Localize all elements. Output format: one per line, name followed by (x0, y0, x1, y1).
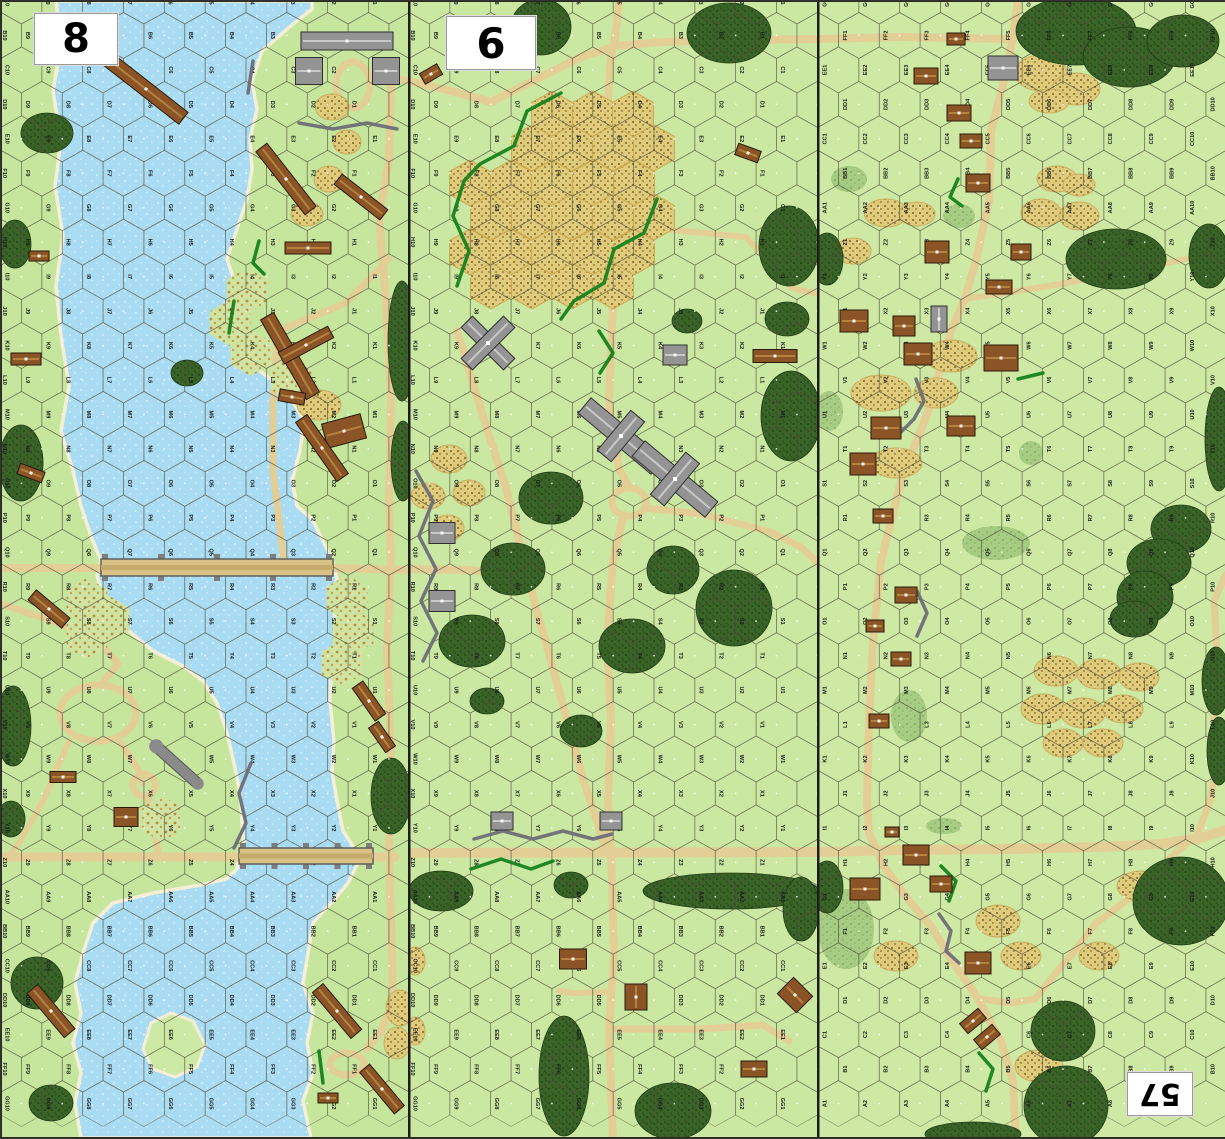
svg-text:P6: P6 (554, 514, 560, 521)
svg-text:T3: T3 (269, 652, 275, 659)
svg-text:Q4: Q4 (248, 549, 254, 557)
wooden-building (29, 251, 49, 261)
svg-text:S9: S9 (1149, 480, 1155, 487)
svg-text:F6: F6 (146, 170, 152, 177)
svg-text:H5: H5 (187, 239, 193, 246)
svg-text:M9: M9 (1149, 686, 1155, 694)
svg-text:FF1: FF1 (350, 1064, 356, 1074)
wooden-building (960, 134, 982, 148)
svg-text:L4: L4 (636, 377, 642, 384)
svg-text:T6: T6 (146, 652, 152, 659)
svg-text:U5: U5 (616, 687, 622, 694)
svg-text:V8: V8 (473, 721, 479, 728)
svg-text:N1: N1 (350, 445, 356, 452)
svg-text:H6: H6 (146, 239, 152, 246)
svg-text:CC5: CC5 (616, 960, 622, 971)
svg-text:EE1: EE1 (779, 1029, 785, 1040)
svg-text:Y5: Y5 (986, 273, 992, 280)
svg-text:AA1: AA1 (371, 891, 377, 902)
svg-text:M3: M3 (904, 686, 910, 694)
svg-text:J7: J7 (513, 308, 519, 314)
svg-text:X4: X4 (228, 790, 234, 798)
svg-text:Y7: Y7 (1067, 273, 1073, 280)
svg-text:H1: H1 (758, 239, 764, 246)
svg-text:EE9: EE9 (1149, 65, 1155, 76)
svg-text:AA4: AA4 (945, 201, 951, 213)
svg-text:BB2: BB2 (310, 926, 316, 937)
svg-text:Q4: Q4 (656, 549, 662, 557)
svg-text:EE4: EE4 (248, 1029, 254, 1040)
svg-text:K1: K1 (779, 342, 785, 349)
svg-text:Y10: Y10 (1190, 272, 1196, 282)
svg-text:W8: W8 (85, 755, 91, 763)
svg-text:U8: U8 (85, 687, 91, 694)
svg-text:X1: X1 (758, 790, 764, 797)
svg-text:EE2: EE2 (863, 65, 869, 76)
svg-text:S4: S4 (945, 479, 951, 487)
svg-text:BB5: BB5 (1006, 168, 1012, 179)
wooden-building (895, 587, 917, 603)
svg-text:X6: X6 (554, 790, 560, 797)
svg-text:Y8: Y8 (1108, 273, 1114, 280)
svg-text:FF3: FF3 (269, 1064, 275, 1074)
svg-text:Q10: Q10 (411, 547, 417, 558)
svg-text:F7: F7 (105, 170, 111, 177)
svg-text:X5: X5 (595, 790, 601, 797)
svg-text:X5: X5 (187, 790, 193, 797)
svg-text:H10: H10 (1210, 857, 1216, 867)
svg-text:FF2: FF2 (884, 30, 890, 40)
svg-text:I8: I8 (85, 274, 91, 279)
svg-text:W2: W2 (330, 755, 336, 763)
svg-text:H6: H6 (554, 239, 560, 246)
svg-text:G5: G5 (616, 204, 622, 211)
svg-text:EE9: EE9 (44, 1029, 50, 1040)
svg-text:Q1: Q1 (371, 549, 377, 556)
svg-text:BB10: BB10 (1210, 166, 1216, 180)
wooden-building (984, 345, 1018, 371)
svg-text:F1: F1 (350, 170, 356, 177)
svg-text:L7: L7 (105, 377, 111, 384)
svg-text:Z6: Z6 (554, 859, 560, 866)
svg-text:D6: D6 (554, 101, 560, 108)
svg-text:AA5: AA5 (208, 891, 214, 902)
svg-text:I2: I2 (330, 274, 336, 279)
svg-text:K6: K6 (575, 342, 581, 349)
svg-text:E4: E4 (656, 135, 662, 143)
svg-text:J4: J4 (965, 789, 971, 796)
svg-text:AA2: AA2 (738, 891, 744, 902)
svg-text:FF3: FF3 (924, 30, 930, 40)
svg-text:R3: R3 (677, 583, 683, 590)
svg-text:Z9: Z9 (24, 859, 30, 866)
svg-text:X8: X8 (473, 790, 479, 797)
svg-text:V10: V10 (1210, 375, 1216, 385)
svg-text:B7: B7 (1088, 1066, 1094, 1073)
svg-text:J5: J5 (1006, 790, 1012, 796)
svg-text:Q10: Q10 (1190, 547, 1196, 558)
svg-text:Y10: Y10 (3, 823, 9, 833)
svg-text:K2: K2 (330, 342, 336, 349)
svg-text:S2: S2 (738, 618, 744, 625)
svg-text:L10: L10 (1210, 720, 1216, 730)
svg-text:CC5: CC5 (208, 960, 214, 971)
svg-text:G10: G10 (1190, 892, 1196, 903)
svg-text:I9: I9 (44, 274, 50, 279)
svg-text:L2: L2 (718, 377, 724, 384)
hex-map-canvas[interactable]: A10A9A8A7A6A5A4A3A2A1B10B9B8B7B6B5B4B3B2… (1, 1, 1225, 1138)
svg-text:G3: G3 (904, 893, 910, 900)
svg-text:BB3: BB3 (677, 926, 683, 937)
svg-text:R3: R3 (269, 583, 275, 590)
svg-text:W1: W1 (779, 755, 785, 763)
wooden-building (891, 652, 911, 666)
svg-text:Q3: Q3 (289, 549, 295, 556)
svg-text:CC1: CC1 (371, 960, 377, 971)
svg-text:K8: K8 (1108, 755, 1114, 762)
svg-text:W4: W4 (945, 340, 951, 349)
svg-text:E3: E3 (289, 135, 295, 142)
svg-text:U3: U3 (904, 411, 910, 418)
svg-text:C3: C3 (697, 66, 703, 73)
svg-text:F5: F5 (595, 170, 601, 177)
svg-text:X3: X3 (269, 790, 275, 797)
svg-text:H1: H1 (843, 859, 849, 866)
svg-text:H9: H9 (1169, 859, 1175, 866)
svg-text:Z4: Z4 (636, 859, 642, 866)
svg-text:D8: D8 (65, 101, 71, 108)
svg-text:GG5: GG5 (616, 1098, 622, 1110)
svg-text:L6: L6 (554, 377, 560, 384)
svg-text:K9: K9 (44, 342, 50, 349)
svg-text:J8: J8 (65, 308, 71, 314)
svg-text:E10: E10 (411, 134, 417, 144)
svg-text:W6: W6 (575, 755, 581, 763)
svg-text:K7: K7 (1067, 755, 1073, 762)
svg-text:W10: W10 (3, 753, 9, 765)
svg-text:O8: O8 (85, 480, 91, 487)
svg-text:U9: U9 (44, 687, 50, 694)
wooden-building (866, 620, 884, 632)
stone-building (663, 345, 687, 365)
svg-text:K6: K6 (167, 342, 173, 349)
svg-text:E10: E10 (3, 134, 9, 144)
svg-text:M9: M9 (44, 411, 50, 419)
svg-text:G6: G6 (167, 204, 173, 211)
svg-text:D7: D7 (513, 101, 519, 108)
svg-text:G6: G6 (1027, 893, 1033, 900)
svg-text:W3: W3 (289, 755, 295, 763)
svg-text:T9: T9 (432, 652, 438, 659)
svg-text:N3: N3 (677, 445, 683, 452)
svg-text:CC4: CC4 (656, 960, 662, 972)
svg-text:R9: R9 (24, 583, 30, 590)
wooden-building (947, 33, 965, 45)
svg-text:DD8: DD8 (473, 995, 479, 1006)
svg-text:Q6: Q6 (1027, 549, 1033, 556)
svg-text:S2: S2 (863, 480, 869, 487)
svg-text:O9: O9 (452, 480, 458, 487)
svg-text:H7: H7 (1088, 859, 1094, 866)
svg-text:L1: L1 (350, 377, 356, 384)
svg-text:C5: C5 (616, 66, 622, 73)
svg-text:BB3: BB3 (269, 926, 275, 937)
svg-text:EE7: EE7 (1067, 65, 1073, 76)
svg-text:H4: H4 (636, 239, 642, 247)
svg-text:Z1: Z1 (843, 239, 849, 246)
svg-text:J7: J7 (105, 308, 111, 314)
svg-text:G1: G1 (779, 204, 785, 211)
svg-text:L3: L3 (677, 377, 683, 384)
svg-text:L8: L8 (65, 377, 71, 384)
svg-text:G5: G5 (986, 893, 992, 900)
board-number-6: 6 (446, 16, 536, 70)
svg-text:J6: J6 (1047, 790, 1053, 796)
svg-text:R4: R4 (636, 583, 642, 591)
svg-text:D1: D1 (843, 997, 849, 1004)
svg-text:E7: E7 (126, 135, 132, 142)
svg-text:Y6: Y6 (167, 824, 173, 831)
svg-text:K10: K10 (411, 340, 417, 350)
svg-text:R1: R1 (843, 514, 849, 521)
svg-text:P7: P7 (513, 514, 519, 521)
svg-text:FF4: FF4 (636, 1064, 642, 1075)
svg-text:BB7: BB7 (1088, 168, 1094, 179)
svg-text:DD1: DD1 (843, 99, 849, 110)
svg-text:F8: F8 (65, 170, 71, 177)
svg-text:J3: J3 (924, 790, 930, 796)
svg-text:H1: H1 (350, 239, 356, 246)
svg-text:R5: R5 (187, 583, 193, 590)
svg-text:W10: W10 (411, 753, 417, 765)
svg-text:AA5: AA5 (616, 891, 622, 902)
svg-text:EE3: EE3 (697, 1029, 703, 1040)
svg-text:K7: K7 (534, 342, 540, 349)
svg-text:A7: A7 (1067, 1100, 1073, 1107)
svg-text:B6: B6 (146, 32, 152, 39)
svg-text:DD4: DD4 (228, 995, 234, 1007)
svg-text:P4: P4 (228, 514, 234, 522)
svg-text:O1: O1 (779, 480, 785, 487)
svg-text:F4: F4 (228, 170, 234, 177)
svg-text:GG10: GG10 (411, 1096, 417, 1111)
svg-text:G9: G9 (1149, 893, 1155, 900)
svg-text:Y4: Y4 (248, 824, 254, 832)
svg-text:G2: G2 (330, 204, 336, 211)
wooden-building (930, 876, 952, 892)
svg-text:Z9: Z9 (432, 859, 438, 866)
svg-text:E2: E2 (330, 135, 336, 142)
svg-text:Q2: Q2 (863, 549, 869, 556)
svg-text:DD9: DD9 (432, 995, 438, 1006)
svg-text:U9: U9 (1149, 411, 1155, 418)
wooden-building (1011, 244, 1031, 260)
svg-text:I2: I2 (738, 274, 744, 279)
svg-text:V6: V6 (146, 721, 152, 728)
wooden-building (893, 316, 915, 336)
svg-text:R6: R6 (554, 583, 560, 590)
svg-text:P3: P3 (269, 514, 275, 521)
svg-text:N5: N5 (187, 445, 193, 452)
svg-text:V4: V4 (965, 376, 971, 384)
svg-text:B2: B2 (718, 32, 724, 39)
board-57[interactable] (811, 1, 1225, 1138)
svg-text:E5: E5 (616, 135, 622, 142)
svg-text:D4: D4 (228, 101, 234, 109)
svg-text:A1: A1 (822, 1100, 828, 1107)
svg-text:T2: T2 (884, 446, 890, 453)
svg-text:CC3: CC3 (904, 133, 910, 144)
svg-text:H8: H8 (1129, 859, 1135, 866)
svg-text:G6: G6 (575, 204, 581, 211)
svg-text:K3: K3 (904, 755, 910, 762)
svg-text:N9: N9 (432, 445, 438, 452)
svg-text:BB5: BB5 (595, 926, 601, 937)
svg-text:AA10: AA10 (1190, 201, 1196, 215)
svg-text:I7: I7 (534, 274, 540, 279)
svg-text:Z6: Z6 (146, 859, 152, 866)
svg-text:W2: W2 (738, 755, 744, 763)
svg-text:B6: B6 (554, 32, 560, 39)
svg-text:C3: C3 (289, 66, 295, 73)
svg-text:FF4: FF4 (228, 1064, 234, 1075)
svg-text:T9: T9 (1169, 446, 1175, 453)
svg-text:H3: H3 (677, 239, 683, 246)
svg-text:B3: B3 (677, 32, 683, 39)
wooden-building (947, 416, 975, 436)
svg-text:J6: J6 (554, 308, 560, 314)
stone-building (429, 523, 455, 544)
svg-text:C2: C2 (330, 66, 336, 73)
svg-text:N7: N7 (105, 445, 111, 452)
svg-text:S4: S4 (656, 618, 662, 626)
wooden-building (850, 878, 880, 900)
svg-text:D5: D5 (595, 101, 601, 108)
svg-text:U7: U7 (1067, 411, 1073, 418)
svg-text:V5: V5 (187, 721, 193, 728)
svg-text:W3: W3 (697, 755, 703, 763)
svg-text:U6: U6 (575, 687, 581, 694)
svg-text:J1: J1 (350, 308, 356, 314)
svg-text:BB2: BB2 (718, 926, 724, 937)
svg-text:U10: U10 (411, 685, 417, 695)
stone-building (296, 58, 323, 85)
svg-text:T4: T4 (636, 652, 642, 659)
svg-text:L7: L7 (1088, 721, 1094, 728)
svg-text:G8: G8 (493, 204, 499, 211)
svg-text:E9: E9 (452, 135, 458, 142)
svg-text:U3: U3 (289, 687, 295, 694)
svg-text:CC2: CC2 (330, 960, 336, 971)
svg-text:BB6: BB6 (146, 926, 152, 937)
svg-text:U3: U3 (697, 687, 703, 694)
svg-text:AA2: AA2 (863, 202, 869, 213)
svg-text:O9: O9 (1149, 617, 1155, 624)
svg-text:S10: S10 (1190, 478, 1196, 488)
svg-text:N4: N4 (965, 651, 971, 659)
svg-text:D3: D3 (924, 997, 930, 1004)
vasl-map[interactable]: A10A9A8A7A6A5A4A3A2A1B10B9B8B7B6B5B4B3B2… (0, 0, 1225, 1139)
svg-text:J9: J9 (24, 308, 30, 314)
svg-text:D1: D1 (350, 101, 356, 108)
svg-text:V3: V3 (924, 377, 930, 384)
svg-text:I8: I8 (493, 274, 499, 279)
svg-text:U7: U7 (126, 687, 132, 694)
svg-text:DD9: DD9 (1169, 99, 1175, 110)
svg-text:O8: O8 (493, 480, 499, 487)
svg-text:Y2: Y2 (330, 824, 336, 831)
svg-text:R1: R1 (758, 583, 764, 590)
svg-text:Y1: Y1 (371, 824, 377, 831)
svg-text:F7: F7 (513, 170, 519, 177)
svg-text:P9: P9 (24, 514, 30, 521)
svg-text:M10: M10 (411, 409, 417, 420)
svg-text:X2: X2 (310, 790, 316, 797)
svg-text:F1: F1 (843, 928, 849, 935)
svg-text:DD5: DD5 (187, 995, 193, 1006)
svg-text:F10: F10 (1210, 926, 1216, 936)
svg-text:C9: C9 (44, 66, 50, 73)
svg-text:CC8: CC8 (1108, 133, 1114, 144)
svg-text:EE8: EE8 (85, 1029, 91, 1040)
svg-text:AA5: AA5 (986, 202, 992, 213)
svg-text:I6: I6 (1027, 826, 1033, 831)
svg-text:EE2: EE2 (738, 1029, 744, 1040)
svg-text:V4: V4 (228, 721, 234, 729)
svg-text:U9: U9 (452, 687, 458, 694)
svg-text:V2: V2 (310, 721, 316, 728)
svg-text:L7: L7 (513, 377, 519, 384)
svg-text:E3: E3 (904, 962, 910, 969)
svg-text:K8: K8 (85, 342, 91, 349)
svg-text:X2: X2 (884, 308, 890, 315)
svg-text:M2: M2 (330, 411, 336, 419)
svg-text:Y9: Y9 (452, 824, 458, 831)
svg-text:I2: I2 (863, 826, 869, 831)
svg-text:O2: O2 (738, 480, 744, 487)
svg-text:H8: H8 (65, 239, 71, 246)
svg-text:U4: U4 (248, 687, 254, 695)
svg-text:D7: D7 (105, 101, 111, 108)
svg-text:CC8: CC8 (85, 960, 91, 971)
svg-text:B9: B9 (24, 32, 30, 39)
svg-text:J2: J2 (310, 308, 316, 314)
wooden-building (925, 241, 949, 263)
svg-text:Q2: Q2 (738, 549, 744, 556)
svg-text:BB9: BB9 (24, 926, 30, 937)
svg-text:Q1: Q1 (779, 549, 785, 556)
svg-text:D9: D9 (24, 101, 30, 108)
svg-text:Q4: Q4 (945, 548, 951, 556)
svg-text:E1: E1 (779, 135, 785, 142)
svg-text:C1: C1 (822, 1031, 828, 1038)
wooden-building (873, 509, 893, 523)
svg-text:BB8: BB8 (1129, 168, 1135, 179)
svg-text:S3: S3 (289, 618, 295, 625)
svg-text:CC1: CC1 (779, 960, 785, 971)
svg-text:Q7: Q7 (534, 549, 540, 556)
svg-text:K4: K4 (945, 755, 951, 763)
svg-text:C8: C8 (1108, 1031, 1114, 1038)
svg-text:X8: X8 (1129, 308, 1135, 315)
svg-text:C4: C4 (656, 66, 662, 74)
svg-text:Q7: Q7 (1067, 549, 1073, 556)
svg-text:Q9: Q9 (1149, 549, 1155, 556)
svg-text:AA3: AA3 (904, 202, 910, 213)
svg-text:W8: W8 (1108, 341, 1114, 349)
svg-text:X1: X1 (350, 790, 356, 797)
svg-text:U4: U4 (656, 687, 662, 695)
